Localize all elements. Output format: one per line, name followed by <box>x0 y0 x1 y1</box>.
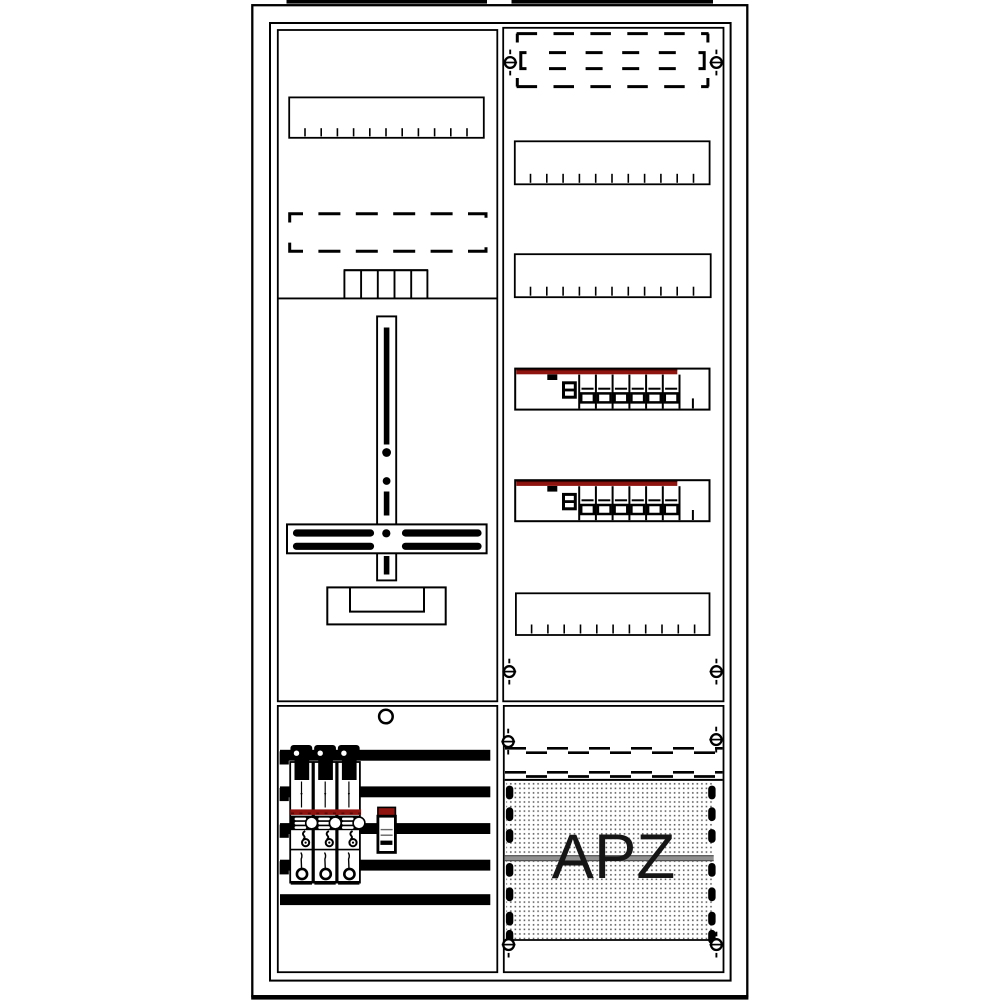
svg-text:APZ: APZ <box>552 822 676 892</box>
